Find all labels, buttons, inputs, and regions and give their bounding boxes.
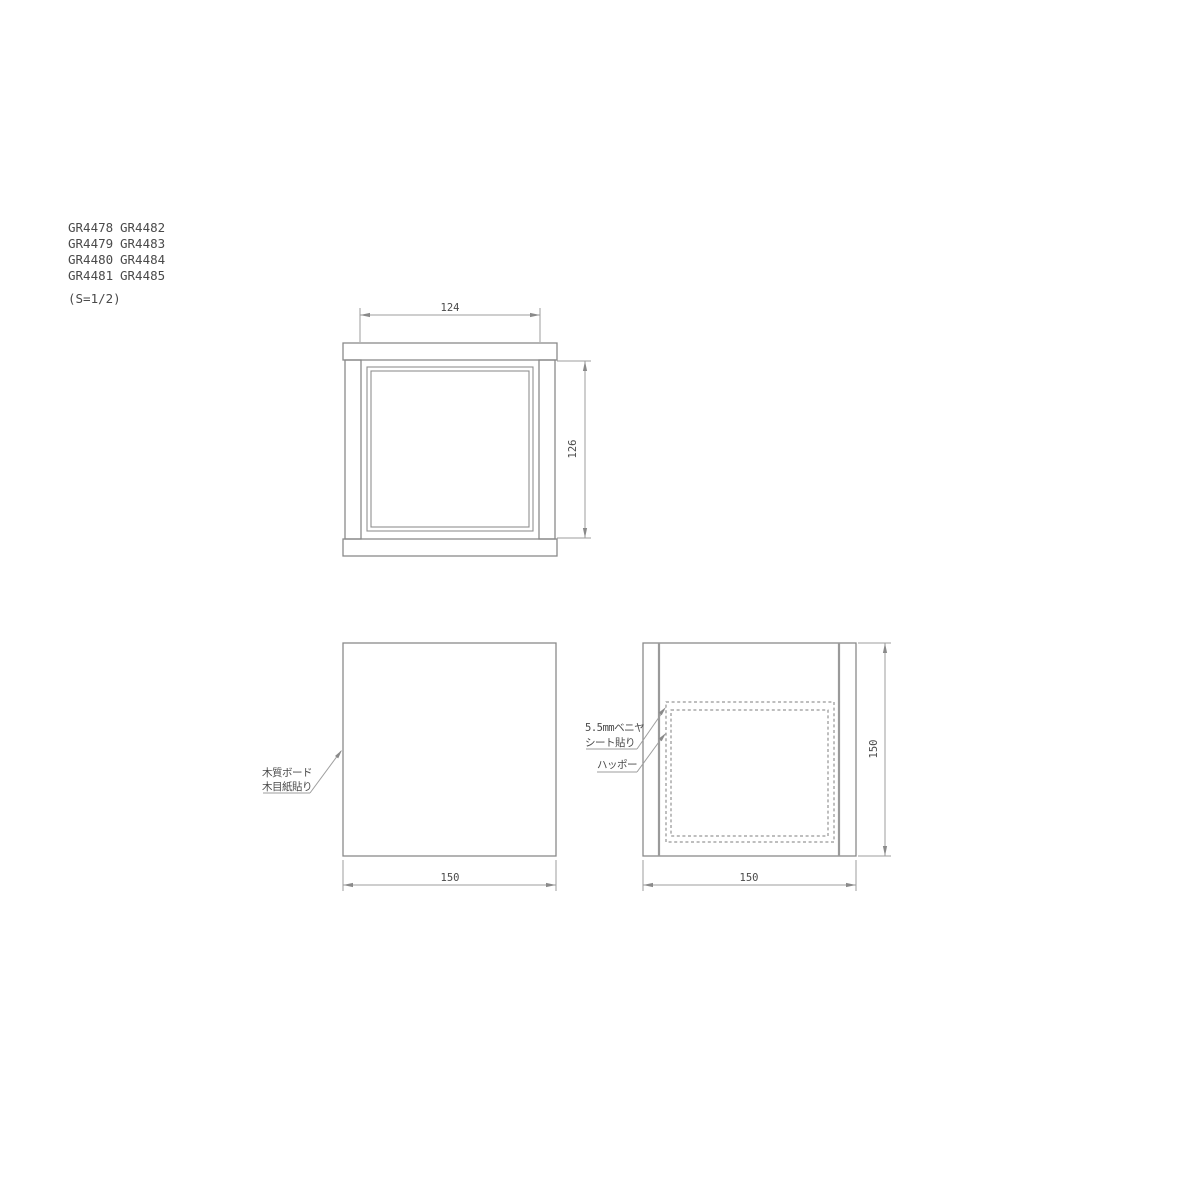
dim-arrow bbox=[583, 361, 587, 371]
section-view: 5.5mmベニヤ シート貼り ハッポー 150 150 bbox=[585, 643, 891, 891]
part-number: GR4478 bbox=[68, 220, 113, 235]
foam-label: ハッポー bbox=[597, 759, 637, 771]
plywood-hidden-outline bbox=[666, 702, 834, 842]
part-number: GR4484 bbox=[120, 252, 165, 267]
cad-drawing: GR4478 GR4482 GR4479 GR4483 GR4480 GR448… bbox=[0, 0, 1200, 1200]
dim-arrow bbox=[583, 528, 587, 538]
part-number: GR4482 bbox=[120, 220, 165, 235]
dim-arrow bbox=[530, 313, 540, 317]
front-height-value: 126 bbox=[567, 440, 579, 459]
dim-arrow bbox=[360, 313, 370, 317]
front-elevation-view: 124 126 bbox=[343, 302, 591, 556]
plywood-label-line2: シート貼り bbox=[585, 736, 635, 749]
part-number: GR4480 bbox=[68, 252, 113, 267]
plywood-leader: 5.5mmベニヤ シート貼り bbox=[585, 707, 666, 749]
board-face bbox=[343, 643, 556, 856]
part-number: GR4479 bbox=[68, 236, 113, 251]
plan-view: 木質ボード 木目紙貼り 150 bbox=[262, 643, 556, 891]
part-number-list: GR4478 GR4482 GR4479 GR4483 GR4480 GR448… bbox=[68, 220, 165, 306]
front-height-dimension: 126 bbox=[557, 361, 591, 538]
material-label-line1: 木質ボード bbox=[262, 766, 312, 779]
inner-panel-outer bbox=[367, 367, 533, 531]
box-outline bbox=[643, 643, 856, 856]
inner-panel-inner bbox=[371, 371, 529, 527]
dim-arrow bbox=[883, 846, 887, 856]
part-number: GR4481 bbox=[68, 268, 113, 283]
bottom-board bbox=[343, 539, 557, 556]
foam-hidden-outline bbox=[671, 710, 828, 836]
section-width-dimension: 150 bbox=[643, 860, 856, 891]
dim-arrow bbox=[343, 883, 353, 887]
section-height-value: 150 bbox=[868, 740, 880, 759]
right-stile bbox=[539, 360, 555, 539]
dim-arrow bbox=[846, 883, 856, 887]
section-width-value: 150 bbox=[740, 872, 759, 884]
front-width-value: 124 bbox=[441, 302, 460, 314]
dim-arrow bbox=[883, 643, 887, 653]
material-leader: 木質ボード 木目紙貼り bbox=[262, 750, 342, 793]
dim-arrow bbox=[643, 883, 653, 887]
top-board bbox=[343, 343, 557, 360]
plan-width-value: 150 bbox=[441, 872, 460, 884]
left-stile bbox=[345, 360, 361, 539]
plywood-label-line1: 5.5mmベニヤ bbox=[585, 722, 644, 734]
dim-arrow bbox=[546, 883, 556, 887]
section-height-dimension: 150 bbox=[858, 643, 891, 856]
material-label-line2: 木目紙貼り bbox=[262, 780, 312, 793]
part-number: GR4483 bbox=[120, 236, 165, 251]
front-width-dimension: 124 bbox=[360, 302, 540, 342]
drawing-sheet: GR4478 GR4482 GR4479 GR4483 GR4480 GR448… bbox=[0, 0, 1200, 1200]
part-number: GR4485 bbox=[120, 268, 165, 283]
scale-note: (S=1/2) bbox=[68, 291, 121, 306]
plan-width-dimension: 150 bbox=[343, 860, 556, 891]
